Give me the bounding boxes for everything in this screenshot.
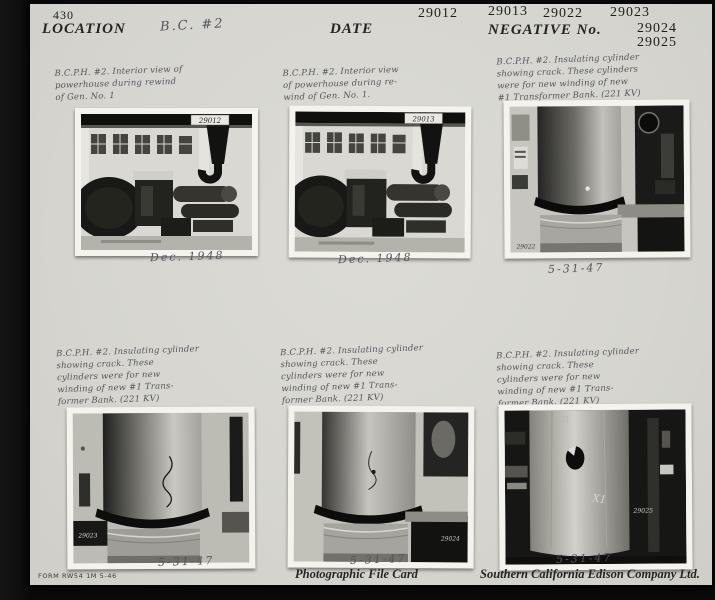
photo-negative-number: 29025 — [632, 508, 653, 515]
photo-negative-number: 29023 — [77, 532, 97, 539]
photo-date-6: 5-31-47 — [556, 551, 613, 566]
photo-date-2: Dec. 1948 — [338, 251, 413, 267]
photo-caption-3: B.C.P.H. #2. Insulating cylinder showing… — [496, 51, 698, 106]
negative-number-29023: 29023 — [610, 5, 650, 21]
insulating-cylinder — [537, 106, 621, 206]
company-name: Southern California Edison Company Ltd. — [480, 567, 700, 582]
photo-cylinder-1: 29022 — [503, 99, 690, 258]
photo-caption-6: B.C.P.H. #2. Insulating cylinder showing… — [496, 345, 693, 411]
photo-caption-2: B.C.P.H. #2. Interior view of powerhouse… — [282, 63, 458, 105]
photo-negative-number: 29012 — [198, 117, 222, 125]
photo-cylinder-3: 29024 — [288, 406, 475, 569]
photo-caption-1: B.C.P.H. #2. Interior view of powerhouse… — [54, 63, 230, 105]
location-label: LOCATION — [42, 21, 126, 38]
photo-cylinder-4: TB X1 29025 — [498, 403, 692, 570]
negative-number-29012: 29012 — [418, 6, 458, 22]
photo-date-1: Dec. 1948 — [150, 249, 225, 265]
photo-date-4: 5-31-47 — [158, 554, 215, 569]
negative-number-29022: 29022 — [543, 6, 583, 22]
photo-negative-number: 29022 — [515, 243, 535, 250]
location-value: B.C. #2 — [160, 16, 225, 34]
date-label: DATE — [330, 21, 373, 38]
negative-label: NEGATIVE No. — [488, 22, 602, 39]
photo-caption-5: B.C.P.H. #2. Insulating cylinder showing… — [280, 342, 467, 408]
photo-powerhouse-1: 29012 — [75, 108, 258, 256]
photo-negative-number: 29013 — [412, 114, 436, 123]
photo-negative-number: 29024 — [440, 535, 460, 542]
photo-powerhouse-2: 29013 — [289, 106, 472, 259]
card-type-title: Photographic File Card — [295, 567, 418, 582]
form-number: FORM RW54 1M 5-46 — [38, 572, 117, 580]
chalk-mark-x1: X1 — [591, 492, 607, 506]
photo-date-3: 5-31-47 — [548, 261, 605, 276]
chalk-mark-tb: TB — [555, 415, 569, 428]
insulating-cylinder — [103, 413, 202, 521]
photo-caption-4: B.C.P.H. #2. Insulating cylinder showing… — [56, 343, 243, 409]
pedestal — [540, 215, 622, 253]
photo-cylinder-2: 29023 — [67, 407, 256, 570]
photo-date-5: 5-31-47 — [350, 552, 407, 567]
photographic-file-card: 430 LOCATION B.C. #2 DATE NEGATIVE No. 2… — [30, 4, 712, 585]
scan-background: 430 LOCATION B.C. #2 DATE NEGATIVE No. 2… — [0, 0, 715, 600]
negative-number-29013: 29013 — [488, 4, 528, 20]
crack-spot — [585, 186, 589, 190]
insulating-cylinder — [529, 410, 629, 557]
negative-number-29025: 29025 — [637, 35, 677, 51]
